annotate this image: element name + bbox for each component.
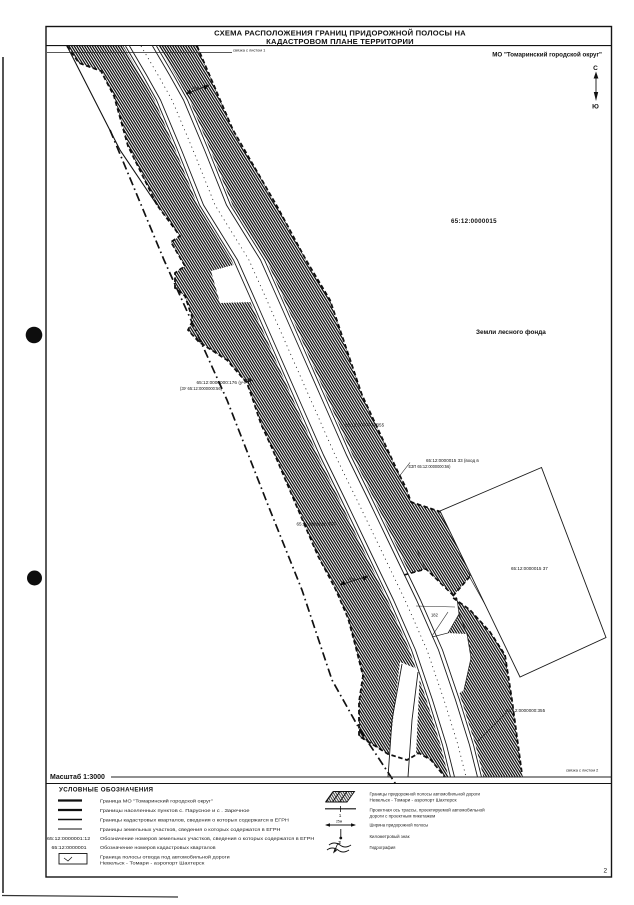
svg-text:связка с листом 1: связка с листом 1 — [233, 49, 265, 53]
svg-text:65:12:0000015 37: 65:12:0000015 37 — [511, 566, 548, 572]
svg-text:65:12:0000000:355: 65:12:0000000:355 — [297, 522, 337, 527]
svg-text:связка с листом 2: связка с листом 2 — [566, 769, 598, 773]
svg-text:182: 182 — [431, 613, 438, 618]
svg-text:Невельск - Томари - аэропорт Ш: Невельск - Томари - аэропорт Шахтерск — [100, 861, 205, 866]
svg-text:Обозначение номеров кадастровы: Обозначение номеров кадастровых квартало… — [100, 845, 216, 850]
svg-text:65:12:0000000:176 (уч. 1): 65:12:0000000:176 (уч. 1) — [197, 380, 253, 385]
svg-text:1: 1 — [339, 813, 342, 818]
svg-text:Граница МО "Томаринский городс: Граница МО "Томаринский городской округ" — [100, 798, 213, 804]
svg-text:МО "Томаринский городской окру: МО "Томаринский городской округ" — [492, 52, 602, 59]
svg-text:25м: 25м — [336, 820, 343, 824]
svg-text:Границы населенных пунктов с.: Границы населенных пунктов с. Парусное и… — [100, 808, 250, 813]
svg-text:Невельск - Томари - аэропорт Ш: Невельск - Томари - аэропорт Шахтерск — [370, 798, 458, 803]
svg-text:дороги с проектным пикетажем: дороги с проектным пикетажем — [370, 814, 436, 819]
svg-text:ЕЗП 65:12:0000000:56): ЕЗП 65:12:0000000:56) — [409, 464, 451, 469]
svg-text:Ю: Ю — [592, 104, 599, 111]
svg-text:Гидрография: Гидрография — [370, 845, 396, 850]
svg-text:Проектная ось трассы, проектир: Проектная ось трассы, проектируемой авто… — [370, 807, 486, 813]
svg-text:Границы кадастровых кварталов,: Границы кадастровых кварталов, сведения … — [100, 818, 289, 823]
svg-text:Километровый знак: Километровый знак — [370, 833, 411, 839]
svg-text:65:12:0000001: 65:12:0000001 — [52, 845, 88, 850]
svg-text:25 м: 25 м — [348, 577, 356, 581]
svg-text:(ЗУ 65:12:0000000:56): (ЗУ 65:12:0000000:56) — [180, 386, 222, 391]
svg-text:65:12:0000015 33 (вход в: 65:12:0000015 33 (вход в — [426, 458, 479, 463]
svg-text:65:12:0000000:355: 65:12:0000000:355 — [345, 423, 385, 428]
svg-text:65:12:0000000:355: 65:12:0000000:355 — [506, 708, 546, 713]
svg-text:65:12:0000015: 65:12:0000015 — [451, 218, 497, 225]
svg-text:25 м: 25 м — [192, 86, 200, 90]
svg-text:2: 2 — [604, 868, 608, 875]
svg-text:Границы придорожной полосы авт: Границы придорожной полосы автомобильной… — [370, 791, 481, 797]
svg-text:С: С — [593, 65, 598, 72]
svg-text:Земли лесного фонда: Земли лесного фонда — [476, 329, 546, 336]
svg-text:УСЛОВНЫЕ ОБОЗНАЧЕНИЯ: УСЛОВНЫЕ ОБОЗНАЧЕНИЯ — [59, 787, 154, 794]
svg-text:Границы земельных участков, св: Границы земельных участков, сведения о к… — [100, 827, 281, 832]
svg-text:КАДАСТРОВОМ ПЛАНЕ ТЕРРИТОРИИ: КАДАСТРОВОМ ПЛАНЕ ТЕРРИТОРИИ — [266, 37, 414, 46]
svg-text:Граница полосы отвода под авто: Граница полосы отвода под автомобильной … — [100, 854, 230, 860]
svg-text:Обозначение номеров земельных: Обозначение номеров земельных участков, … — [100, 836, 314, 841]
svg-text:СХЕМА РАСПОЛОЖЕНИЯ ГРАНИЦ ПРИД: СХЕМА РАСПОЛОЖЕНИЯ ГРАНИЦ ПРИДОРОЖНОЙ ПО… — [214, 28, 466, 37]
svg-text:Масштаб 1:3000: Масштаб 1:3000 — [50, 773, 105, 781]
svg-text:Ширина придорожной полосы: Ширина придорожной полосы — [370, 822, 429, 828]
svg-text:65:12:0000001:12: 65:12:0000001:12 — [47, 836, 91, 841]
